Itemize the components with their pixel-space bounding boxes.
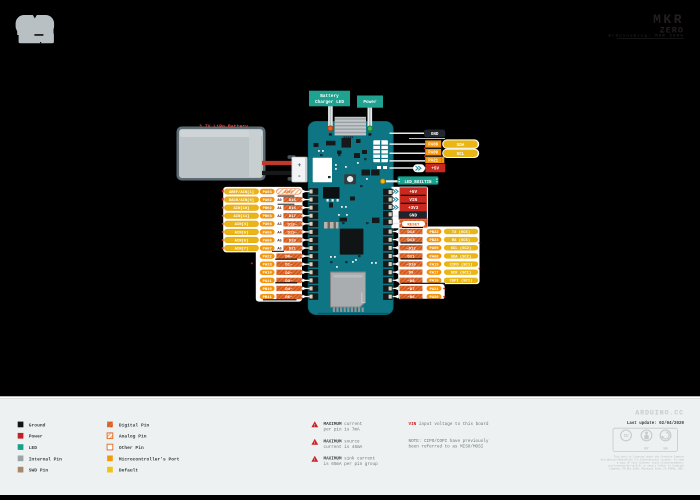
svg-text:SCL: SCL (457, 152, 465, 157)
svg-text:PA04: PA04 (263, 223, 273, 227)
svg-text:PA05: PA05 (263, 231, 273, 235)
svg-text:~D12: ~D12 (406, 247, 416, 251)
svg-text:MAXIMUM: MAXIMUM (324, 456, 342, 461)
svg-text:VIN: VIN (409, 422, 417, 427)
svg-text:PA07: PA07 (263, 247, 273, 251)
svg-text:A1: A1 (277, 207, 281, 211)
svg-text:per pin is 7mA: per pin is 7mA (324, 427, 361, 432)
svg-text:CC: CC (624, 433, 629, 439)
svg-text:COPI (SC1): COPI (SC1) (450, 279, 473, 284)
svg-text:AIN[6]: AIN[6] (235, 238, 249, 243)
svg-text:LED: LED (29, 445, 38, 451)
svg-text:current: current (344, 422, 362, 427)
svg-text:PA17: PA17 (429, 272, 439, 276)
svg-text:SWD Pin: SWD Pin (29, 468, 49, 474)
svg-text:PA08: PA08 (429, 255, 439, 259)
svg-text:D2~: D2~ (285, 272, 293, 276)
svg-text:D18~: D18~ (287, 223, 297, 227)
svg-text:MAXIMUM: MAXIMUM (324, 439, 342, 444)
svg-text:Default: Default (119, 468, 139, 474)
svg-text:Other Pin: Other Pin (119, 445, 144, 451)
svg-text:PA22: PA22 (263, 256, 273, 260)
svg-text:PA03: PA03 (263, 191, 273, 195)
svg-text:~D10: ~D10 (406, 264, 416, 268)
svg-text:Digital Pin: Digital Pin (119, 422, 150, 428)
svg-text:PA19: PA19 (429, 263, 439, 267)
svg-text:Charger LED: Charger LED (315, 100, 344, 105)
svg-text:PA21: PA21 (428, 159, 438, 163)
svg-text:PA08: PA08 (428, 144, 438, 148)
svg-text:Battery: Battery (320, 94, 339, 99)
svg-text:Microcontroller's Port: Microcontroller's Port (119, 456, 180, 462)
svg-text:-: - (297, 173, 301, 181)
svg-text:AREF/AIN[1]: AREF/AIN[1] (229, 190, 254, 195)
svg-text:AIN[7]: AIN[7] (235, 246, 249, 251)
svg-text:been referred to as MISO/MOSI: been referred to as MISO/MOSI (409, 445, 484, 450)
svg-text:PB23: PB23 (429, 239, 439, 243)
svg-text:GND: GND (431, 133, 439, 137)
svg-text:CIPO (SC1): CIPO (SC1) (450, 262, 473, 267)
svg-text:PB02: PB02 (263, 207, 273, 211)
svg-text:Power: Power (29, 434, 43, 440)
svg-text:+: + (297, 162, 301, 169)
svg-text:SCL (SC2): SCL (SC2) (451, 246, 472, 251)
svg-text:RESET: RESET (407, 223, 420, 227)
svg-text:+5V: +5V (409, 191, 417, 195)
svg-text:SA: SA (663, 447, 668, 451)
svg-text:A2: A2 (277, 215, 281, 219)
svg-text:Power: Power (363, 100, 377, 105)
svg-text:current is 46mA: current is 46mA (324, 445, 363, 450)
svg-text:!: ! (314, 442, 316, 446)
svg-text:!: ! (314, 459, 316, 463)
svg-text:RX (SC5): RX (SC5) (452, 238, 470, 243)
svg-text:SDA: SDA (457, 143, 465, 148)
svg-text:D14: D14 (407, 231, 415, 235)
svg-text:BY: BY (644, 447, 649, 451)
svg-text:Commons, PO Box 1866, Mountain: Commons, PO Box 1866, Mountain View, CA … (609, 468, 684, 471)
svg-text:D21: D21 (289, 248, 297, 252)
svg-text:PA09: PA09 (429, 247, 439, 251)
svg-text:D4~: D4~ (285, 288, 293, 292)
svg-text:AIN[11]: AIN[11] (234, 214, 250, 219)
svg-text:D19~: D19~ (287, 231, 297, 235)
svg-text:AREF: AREF (284, 191, 294, 195)
svg-text:MAXIMUM: MAXIMUM (324, 422, 342, 427)
svg-text:sink current: sink current (344, 456, 375, 461)
svg-text:ARDUINO.CC: ARDUINO.CC (635, 410, 684, 418)
svg-text:A3: A3 (277, 223, 281, 227)
svg-text:D20: D20 (289, 239, 297, 243)
svg-text:A5: A5 (277, 239, 281, 243)
svg-text:AIN[10]: AIN[10] (234, 206, 250, 211)
svg-text:Internal Pin: Internal Pin (29, 456, 62, 462)
svg-text:Ground: Ground (29, 422, 46, 428)
svg-text:!: ! (314, 425, 316, 429)
svg-text:SCK (SC1): SCK (SC1) (451, 271, 472, 276)
svg-text:D1~: D1~ (285, 264, 293, 268)
svg-text:+3V3: +3V3 (408, 207, 419, 211)
svg-text:D15: D15 (289, 199, 297, 203)
svg-text:PB03: PB03 (263, 215, 273, 219)
svg-text:source: source (344, 439, 360, 444)
svg-text:AIN[5]: AIN[5] (235, 230, 249, 235)
svg-text:PA06: PA06 (263, 239, 273, 243)
svg-text:TX (SC5): TX (SC5) (452, 230, 470, 235)
svg-text:input voltage to this board: input voltage to this board (419, 422, 489, 427)
svg-text:PA02: PA02 (263, 199, 273, 203)
svg-text:+5V: +5V (431, 167, 439, 172)
svg-text:PA09: PA09 (428, 152, 438, 156)
svg-text:PA21: PA21 (429, 288, 439, 292)
svg-text:D16: D16 (289, 207, 297, 211)
svg-text:Last update: 02/04/2020: Last update: 02/04/2020 (627, 421, 685, 426)
svg-text:D17: D17 (289, 215, 297, 219)
svg-text:A0: A0 (277, 199, 281, 203)
svg-text:Analog Pin: Analog Pin (119, 434, 147, 440)
svg-text:3.7V LiPo Battery: 3.7V LiPo Battery (199, 123, 248, 129)
svg-text:PB10: PB10 (263, 288, 273, 292)
svg-text:GND: GND (409, 214, 417, 218)
svg-text:VIN: VIN (409, 199, 417, 203)
svg-text:PB22: PB22 (429, 231, 439, 235)
svg-text:~D7: ~D7 (407, 288, 415, 292)
svg-text:Arduino&reg; MKR ZERO: Arduino&reg; MKR ZERO (608, 34, 684, 39)
svg-text:AIN[4]: AIN[4] (235, 222, 249, 227)
svg-text:PA23: PA23 (263, 264, 273, 268)
svg-text:is 65mA per pin group: is 65mA per pin group (324, 462, 379, 467)
svg-text:LED_BUILTIN: LED_BUILTIN (404, 181, 432, 185)
svg-text:NOTE: CIPO/COPI have previousl: NOTE: CIPO/COPI have previously (409, 439, 489, 444)
svg-text:PA11: PA11 (263, 280, 273, 284)
svg-text:SDA (SC2): SDA (SC2) (451, 254, 472, 259)
svg-text:PA10: PA10 (263, 272, 273, 276)
svg-text:DAC0/AIN[0]: DAC0/AIN[0] (229, 198, 254, 203)
svg-text:D9: D9 (409, 272, 414, 276)
